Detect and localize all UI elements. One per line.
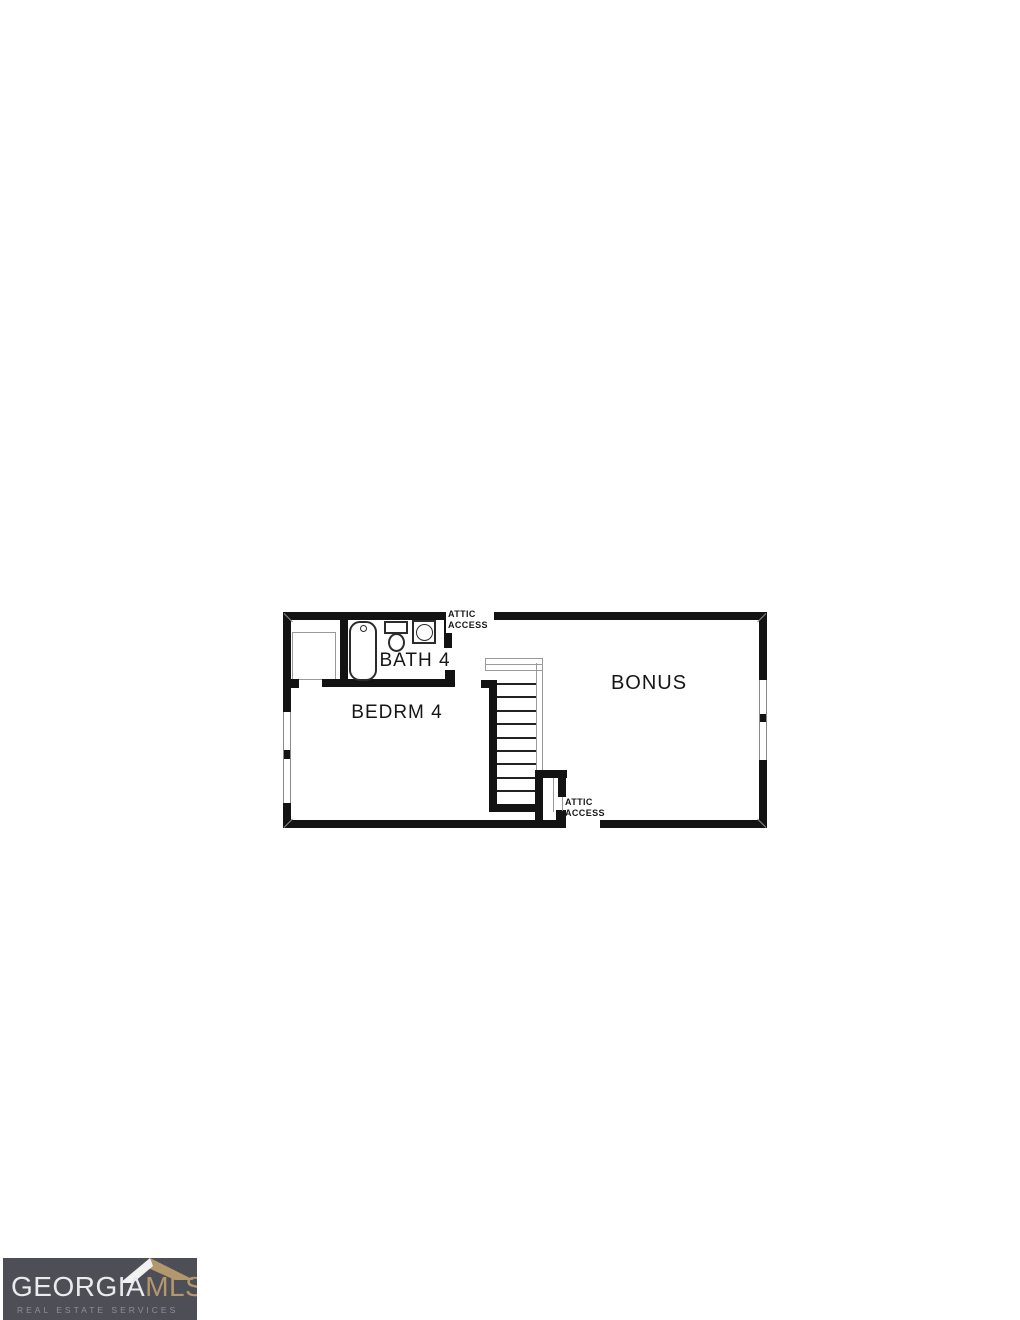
- attic-access-line1: ATTIC: [448, 609, 494, 620]
- stair-guide-line: [542, 671, 543, 771]
- tub-faucet-icon: [360, 625, 367, 632]
- bathtub-icon: [349, 621, 377, 681]
- exterior-wall-right-top: [759, 612, 767, 680]
- nook-top-wall: [535, 770, 567, 778]
- exterior-wall-left-top: [283, 612, 291, 712]
- logo-text-georgia: GEORGIA: [11, 1271, 145, 1302]
- attic-access-line2: ACCESS: [565, 808, 611, 819]
- room-label-bedroom: BEDRM 4: [347, 702, 447, 724]
- window-mullion: [284, 750, 290, 759]
- stair-tread: [493, 710, 536, 712]
- bedroom-door-wall-nub: [291, 679, 299, 688]
- stair-tread: [493, 790, 536, 792]
- nook-guide-line: [553, 778, 554, 812]
- stair-tread: [493, 737, 536, 739]
- nook-guide-line: [562, 797, 563, 811]
- logo-text-mls: MLS: [145, 1271, 197, 1302]
- stair-bottom-wall: [489, 804, 540, 812]
- stair-left-wall: [489, 680, 497, 812]
- georgia-mls-logo: GEORGIAMLS REAL ESTATE SERVICES: [3, 1258, 197, 1320]
- bath-bottom-wall: [322, 679, 455, 687]
- attic-access-label-bottom: ATTIC ACCESS: [565, 797, 611, 819]
- room-label-bath: BATH 4: [375, 650, 455, 672]
- stair-tread: [493, 777, 536, 779]
- floor-plan-page: BATH 4 BEDRM 4 BONUS ATTIC ACCESS ATTIC …: [0, 0, 1020, 1320]
- stair-tread: [493, 683, 536, 685]
- attic-access-line1: ATTIC: [565, 797, 611, 808]
- room-label-bonus: BONUS: [609, 672, 689, 695]
- bath-partition-wall: [340, 618, 348, 686]
- stair-wall-stub: [481, 680, 497, 688]
- stair-tread: [493, 750, 536, 752]
- stair-tread: [493, 763, 536, 765]
- exterior-wall-top: [283, 612, 767, 620]
- exterior-wall-bottom-right: [600, 820, 767, 828]
- exterior-wall-right-bottom: [759, 760, 767, 828]
- closet-outline: [292, 632, 336, 680]
- sink-basin-icon: [416, 624, 433, 641]
- sink-vanity-icon: [412, 620, 436, 644]
- window-right: [759, 680, 767, 760]
- attic-access-line2: ACCESS: [448, 620, 494, 631]
- nook-door-stub: [558, 778, 566, 797]
- stair-treads: [493, 683, 536, 813]
- attic-access-label-top: ATTIC ACCESS: [446, 608, 494, 633]
- window-mullion: [760, 714, 766, 722]
- stair-tread: [493, 723, 536, 725]
- logo-tagline: REAL ESTATE SERVICES: [17, 1305, 178, 1315]
- window-left: [283, 712, 291, 803]
- stair-tread: [493, 696, 536, 698]
- logo-wordmark: GEORGIAMLS: [11, 1272, 197, 1302]
- exterior-wall-bottom-left: [283, 820, 565, 828]
